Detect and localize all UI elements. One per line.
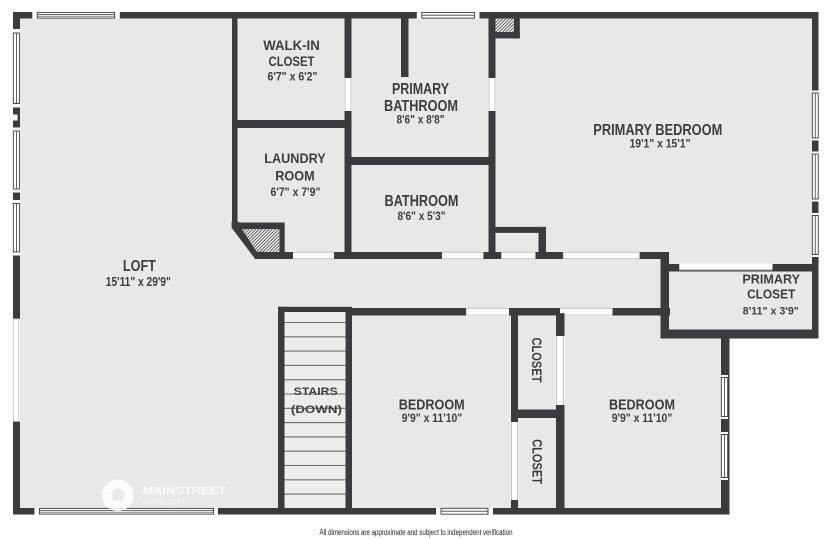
svg-text:9'9" x 11'10": 9'9" x 11'10": [402, 413, 463, 425]
svg-text:ROOM: ROOM: [275, 169, 315, 184]
svg-text:BEDROOM: BEDROOM: [609, 396, 675, 413]
svg-text:PRIMARY: PRIMARY: [392, 81, 449, 98]
svg-text:6'7" x 7'9": 6'7" x 7'9": [271, 185, 321, 199]
svg-text:LOFT: LOFT: [123, 258, 156, 275]
svg-text:LAUNDRY: LAUNDRY: [264, 151, 326, 166]
svg-text:6'7" x 6'2": 6'7" x 6'2": [268, 70, 318, 84]
svg-text:WALK-IN: WALK-IN: [263, 38, 320, 53]
svg-text:CLOSET: CLOSET: [747, 287, 795, 302]
svg-text:19'1" x 15'1": 19'1" x 15'1": [630, 137, 691, 151]
svg-text:9'9" x 11'10": 9'9" x 11'10": [612, 413, 673, 425]
svg-text:RENEWAL: RENEWAL: [143, 498, 188, 507]
svg-text:8'11" x 3'9": 8'11" x 3'9": [743, 305, 799, 317]
svg-text:CLOSET: CLOSET: [530, 439, 546, 484]
svg-text:CLOSET: CLOSET: [529, 338, 545, 383]
svg-text:BATHROOM: BATHROOM: [385, 193, 459, 210]
svg-text:BEDROOM: BEDROOM: [399, 396, 465, 413]
svg-text:All dimensions are approximate: All dimensions are approximate and subje…: [320, 528, 513, 537]
svg-text:PRIMARY: PRIMARY: [742, 272, 800, 287]
svg-text:CLOSET: CLOSET: [269, 54, 316, 69]
svg-text:8'6" x 8'8": 8'6" x 8'8": [397, 113, 445, 127]
svg-text:MAINSTREET: MAINSTREET: [143, 485, 227, 497]
svg-text:15'11" x 29'9": 15'11" x 29'9": [106, 274, 171, 289]
svg-text:(DOWN): (DOWN): [291, 404, 342, 416]
svg-text:8'6" x 5'3": 8'6" x 5'3": [398, 209, 446, 223]
svg-text:STAIRS: STAIRS: [294, 386, 338, 398]
